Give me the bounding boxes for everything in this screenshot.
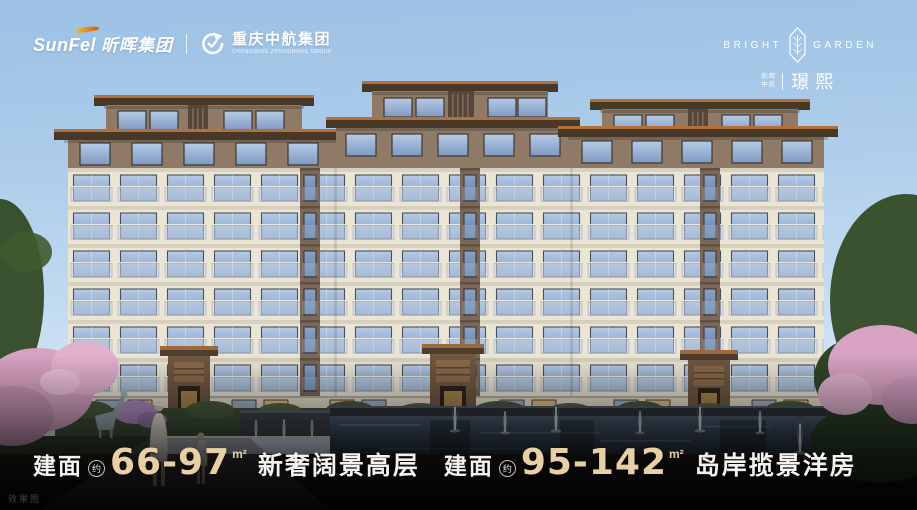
sunfel-logo: SunFel 昕晖集团	[33, 31, 173, 56]
area-range: 95-142	[521, 442, 667, 483]
slogan-highrise: 建面 约 66-97 m² 新奢阔景高层	[33, 442, 420, 483]
approx-circle-badge: 约	[88, 460, 105, 477]
slogan-prefix: 建面	[444, 447, 494, 481]
zhonghang-en-label: CHONGQING ZHONGHANG GROUP	[232, 50, 332, 56]
bright-garden-emblem-icon	[789, 27, 806, 63]
brand-sub-line1: 昕晖	[761, 73, 776, 81]
brand-sub-divider	[782, 73, 783, 90]
approx-circle-badge: 约	[499, 460, 516, 477]
slogan-text: 新奢阔景高层	[258, 446, 420, 482]
zhonghang-swirl-icon	[200, 31, 225, 56]
render-watermark: 效果图	[8, 492, 41, 505]
poster-canvas: SunFel 昕晖集团 重庆中航集团 CHONGQING ZHONGHANG G…	[0, 0, 917, 510]
sunfel-wordmark: SunFel	[33, 35, 96, 56]
area-range: 66-97	[110, 442, 230, 483]
logo-divider	[186, 34, 187, 54]
area-unit: m²	[669, 447, 684, 461]
brand-sub-line2: 中航	[761, 81, 776, 89]
brand-word-left: BRIGHT	[723, 40, 782, 51]
brand-sub-stack: 昕晖 中航	[761, 73, 776, 90]
zhonghang-text: 重庆中航集团 CHONGQING ZHONGHANG GROUP	[232, 32, 332, 56]
slogan-text: 岛岸揽景洋房	[695, 446, 857, 482]
slogan-bar: 建面 约 66-97 m² 新奢阔景高层 建面 约 95-142 m² 岛岸揽景…	[33, 442, 857, 483]
header-logos: SunFel 昕晖集团 重庆中航集团 CHONGQING ZHONGHANG G…	[33, 31, 332, 56]
brand-word-right: GARDEN	[813, 40, 877, 51]
zhonghang-logo: 重庆中航集团 CHONGQING ZHONGHANG GROUP	[200, 31, 332, 56]
slogan-mansion: 建面 约 95-142 m² 岛岸揽景洋房	[444, 442, 857, 483]
zhonghang-cn-label: 重庆中航集团	[232, 32, 332, 49]
sunfel-cn-label: 昕晖集团	[101, 31, 173, 56]
area-unit: m²	[232, 447, 247, 461]
brand-name: 璟熙	[789, 68, 839, 94]
slogan-prefix: 建面	[33, 447, 83, 481]
brand-wordmark-row: BRIGHT GARDEN	[723, 27, 877, 63]
brand-sub-row: 昕晖 中航 璟熙	[761, 68, 839, 94]
bright-garden-brand: BRIGHT GARDEN 昕晖 中航 璟熙	[723, 27, 877, 94]
